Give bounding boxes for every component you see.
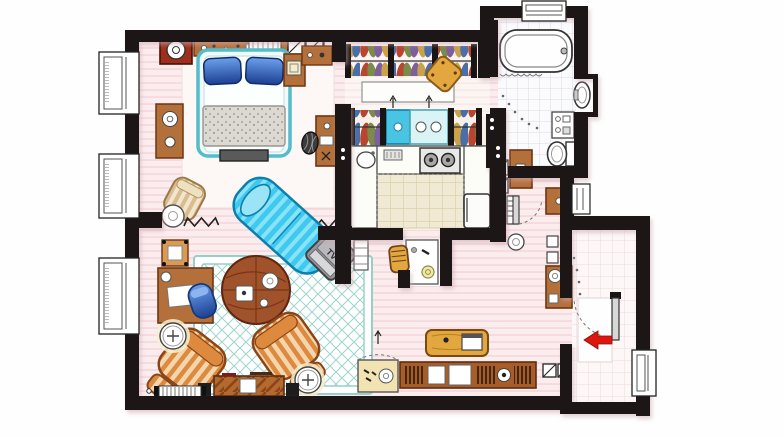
bathtub bbox=[500, 30, 572, 76]
bed-bench bbox=[220, 150, 268, 161]
window-bathroom bbox=[522, 1, 566, 21]
writing-desk bbox=[406, 240, 438, 284]
pillow bbox=[203, 57, 241, 85]
window-left-1 bbox=[99, 52, 139, 114]
window-left-3 bbox=[99, 258, 139, 334]
desk-chair bbox=[389, 245, 410, 273]
kitchen-tiles bbox=[375, 172, 466, 228]
floor-plan: TV bbox=[0, 0, 784, 436]
side-table-square bbox=[162, 240, 188, 266]
fridge bbox=[464, 194, 490, 228]
bath-cabinet bbox=[552, 112, 574, 138]
bookshelf bbox=[400, 362, 536, 388]
side-table-lamp-left bbox=[156, 319, 190, 353]
double-bed bbox=[198, 50, 290, 161]
bathroom-sink bbox=[574, 82, 590, 108]
round-coffee-table bbox=[222, 256, 290, 324]
open-shelf bbox=[354, 240, 368, 270]
speaker bbox=[286, 383, 299, 396]
floor-plan-page: TV bbox=[0, 0, 784, 436]
radiator bbox=[147, 386, 206, 397]
stove bbox=[420, 148, 460, 173]
clothes-rack-bottom-right bbox=[452, 110, 478, 146]
window-entry bbox=[632, 350, 656, 396]
toilet bbox=[548, 142, 576, 166]
blanket bbox=[203, 106, 285, 146]
clothes-rack-bottom-left bbox=[352, 110, 380, 146]
nightstand-left bbox=[156, 104, 183, 158]
window-hall bbox=[572, 184, 590, 214]
bedroom-console bbox=[302, 46, 332, 65]
pillow bbox=[245, 57, 283, 85]
window-left-2 bbox=[99, 154, 139, 218]
round-side-table bbox=[508, 234, 524, 250]
bench-with-laptop bbox=[426, 330, 488, 356]
entry-mat bbox=[578, 298, 612, 362]
